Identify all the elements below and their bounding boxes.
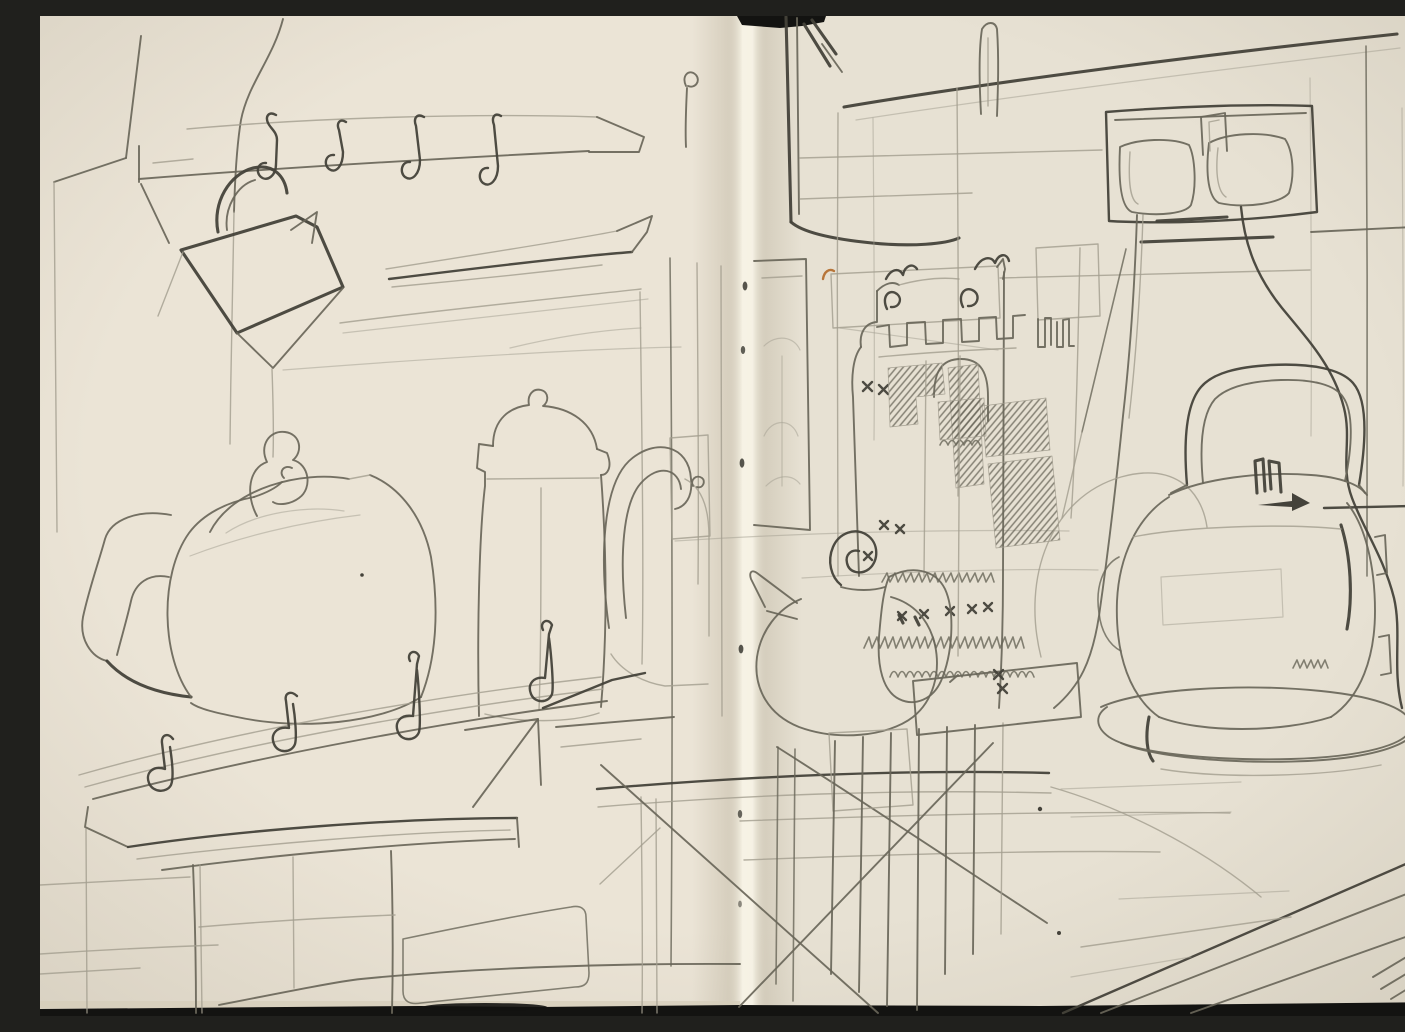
stitch-hole xyxy=(740,458,745,467)
stitch-hole xyxy=(739,645,744,654)
pencil-dot xyxy=(1057,931,1061,935)
sketchbook-scan: kitchen counter still life xyxy=(40,16,1405,1016)
book-gutter xyxy=(692,16,802,1016)
stitch-hole xyxy=(741,346,745,354)
pencil-dot xyxy=(1038,807,1042,811)
kitchen-sketch-svg: kitchen counter still life xyxy=(40,16,1405,1016)
stitch-hole xyxy=(743,282,748,291)
stitch-hole xyxy=(738,901,742,908)
stitch-hole xyxy=(738,810,742,818)
pencil-dot xyxy=(360,573,364,577)
